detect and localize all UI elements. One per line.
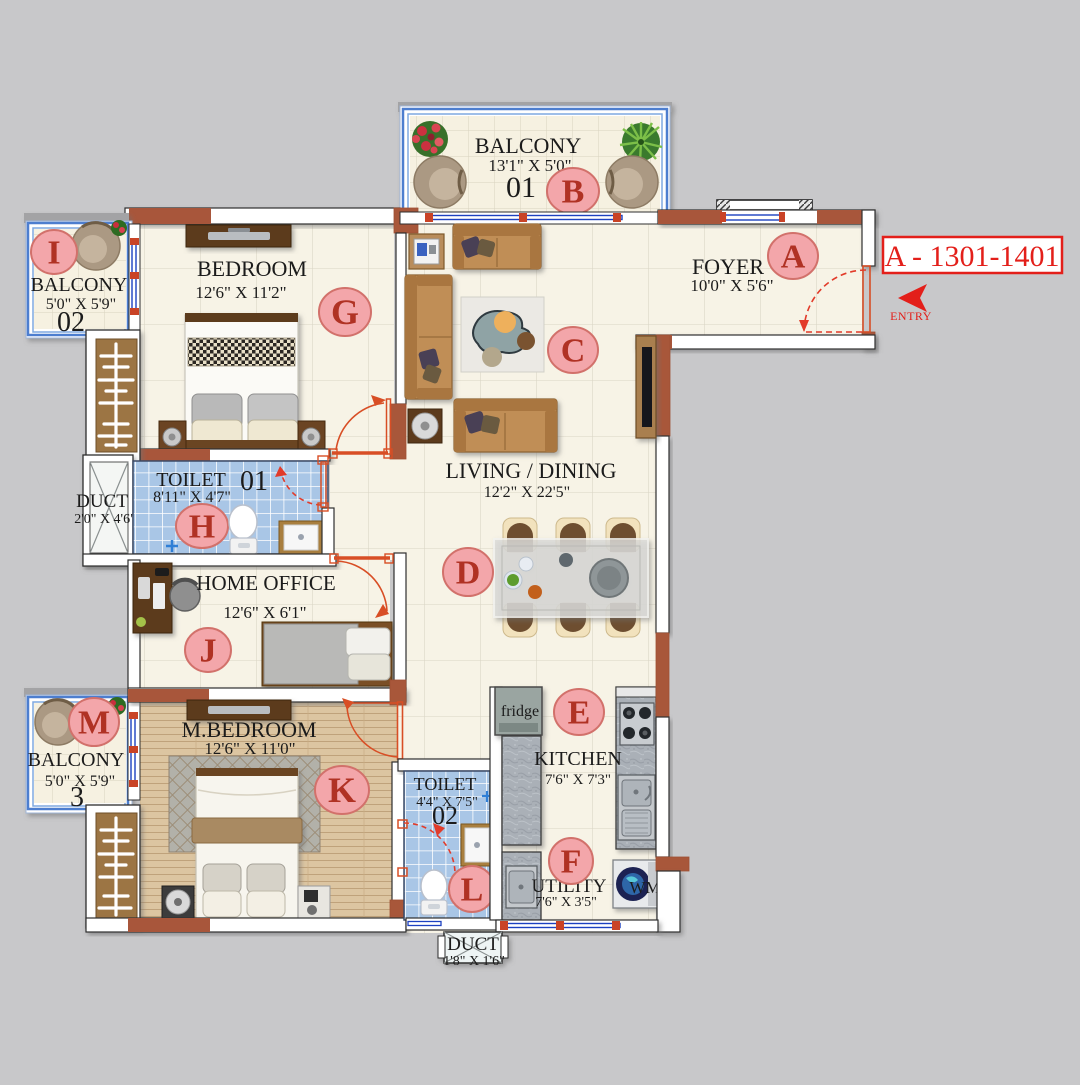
- svg-text:L: L: [461, 872, 484, 909]
- svg-text:12'6" X 11'2": 12'6" X 11'2": [195, 283, 286, 302]
- svg-text:B: B: [562, 174, 585, 211]
- svg-text:K: K: [328, 770, 356, 810]
- svg-text:F: F: [561, 844, 582, 881]
- svg-text:1'8" X 1'6": 1'8" X 1'6": [443, 954, 505, 969]
- svg-text:02: 02: [57, 307, 85, 338]
- svg-text:A - 1301-1401: A - 1301-1401: [885, 240, 1060, 273]
- svg-text:D: D: [456, 555, 481, 592]
- svg-text:I: I: [47, 235, 60, 272]
- svg-text:12'6" X 11'0": 12'6" X 11'0": [204, 739, 295, 758]
- svg-text:01: 01: [506, 171, 536, 204]
- svg-text:TOILET: TOILET: [156, 469, 226, 491]
- svg-text:H: H: [189, 509, 215, 546]
- svg-text:fridge: fridge: [501, 703, 539, 720]
- svg-text:DUCT: DUCT: [76, 491, 128, 512]
- svg-text:E: E: [568, 695, 591, 732]
- svg-text:HOME OFFICE: HOME OFFICE: [196, 571, 335, 595]
- svg-text:8'11" X 4'7": 8'11" X 4'7": [153, 489, 231, 506]
- svg-text:7'6" X 3'5": 7'6" X 3'5": [535, 895, 597, 910]
- svg-text:3: 3: [70, 782, 84, 813]
- svg-text:LIVING / DINING: LIVING / DINING: [445, 458, 616, 483]
- svg-text:TOILET: TOILET: [414, 774, 477, 794]
- svg-text:A: A: [781, 239, 806, 276]
- svg-text:12'6" X 6'1": 12'6" X 6'1": [223, 603, 306, 622]
- svg-text:12'2" X 22'5": 12'2" X 22'5": [484, 484, 570, 501]
- svg-text:M: M: [78, 705, 110, 742]
- svg-text:DUCT: DUCT: [447, 934, 499, 955]
- svg-text:G: G: [331, 292, 359, 332]
- svg-text:10'0" X 5'6": 10'0" X 5'6": [690, 276, 773, 295]
- svg-text:KITCHEN: KITCHEN: [534, 748, 622, 770]
- svg-text:BALCONY: BALCONY: [31, 274, 128, 296]
- svg-text:7'6" X 7'3": 7'6" X 7'3": [545, 772, 611, 788]
- svg-text:BALCONY: BALCONY: [475, 133, 581, 158]
- svg-text:BALCONY: BALCONY: [28, 749, 125, 771]
- svg-text:J: J: [200, 633, 217, 670]
- svg-text:C: C: [561, 333, 586, 370]
- svg-text:01: 01: [240, 466, 268, 497]
- svg-text:BEDROOM: BEDROOM: [197, 256, 307, 281]
- svg-text:ENTRY: ENTRY: [890, 309, 932, 323]
- svg-text:WM: WM: [629, 878, 660, 897]
- svg-text:2'0" X 4'6": 2'0" X 4'6": [74, 512, 136, 527]
